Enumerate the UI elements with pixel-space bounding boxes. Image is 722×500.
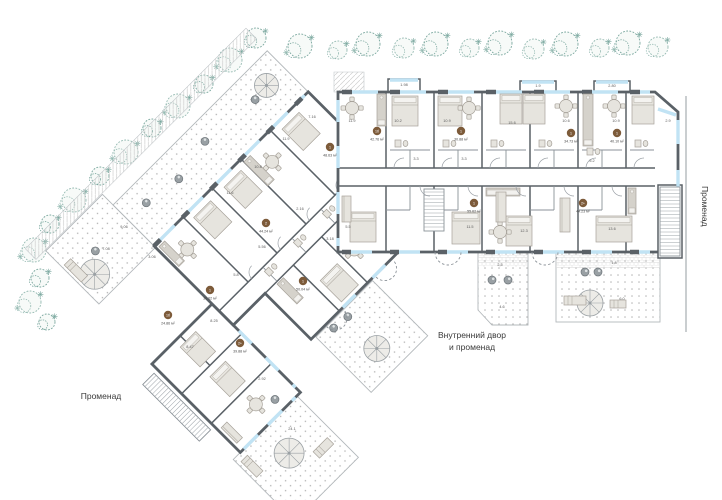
chair: [564, 113, 568, 117]
tree-sparkle: [376, 33, 382, 39]
tree-sparkle: [351, 48, 357, 54]
tree-cluster: [419, 32, 450, 56]
tree-sparkle: [263, 28, 269, 34]
dimension-label: 5.5: [345, 225, 350, 229]
bed: [500, 94, 522, 124]
unit-area: 44.23 м²: [576, 210, 590, 214]
sink: [630, 190, 633, 193]
tree-sparkle: [444, 33, 450, 39]
sink-unit: [443, 140, 449, 147]
tree-sparkle: [611, 47, 617, 53]
chair: [612, 95, 616, 99]
tree-sparkle: [508, 32, 514, 38]
dimension-label: 7.08: [102, 247, 109, 251]
tree-sparkle: [52, 313, 58, 319]
sofa: [560, 198, 570, 232]
tree-cluster: [14, 291, 43, 313]
unit-number: 1: [460, 129, 462, 133]
terrace-paving-2: [556, 252, 660, 268]
sink-unit: [395, 140, 401, 147]
tree-sparkle: [665, 37, 671, 43]
tree-sparkle: [283, 50, 289, 56]
tree-cluster: [29, 269, 51, 287]
tree-cluster: [351, 32, 382, 56]
chair: [489, 230, 493, 234]
dimension-label: 5.56: [258, 245, 265, 249]
tree-cluster: [392, 38, 416, 58]
dimension-label: 5.8: [233, 273, 238, 277]
label-promenade-left: Променад: [81, 391, 122, 401]
bed: [523, 94, 545, 124]
unit-area: 36.62 м²: [203, 297, 217, 301]
chair: [467, 97, 471, 101]
unit-area: 34.73 м²: [564, 140, 578, 144]
tree-sparkle: [308, 35, 314, 41]
stair-flight: [660, 187, 680, 256]
unit-number: 1б: [375, 129, 379, 133]
toilet: [643, 141, 648, 147]
dimension-label: 3.06: [148, 255, 155, 259]
unit-area: 44.24 м²: [259, 230, 273, 234]
label-promenade-right: Променад: [700, 186, 710, 227]
tree-cluster: [483, 31, 514, 55]
potted-plant: [504, 276, 512, 284]
sink-unit: [635, 140, 641, 147]
dimension-label: 10.6: [562, 119, 569, 123]
unit-area: 39.88 м²: [233, 350, 247, 354]
floor-plan-canvas: 1б42.76 м²130.88 м²134.73 м²140.10 м²155…: [0, 0, 722, 500]
lounger: [564, 296, 586, 305]
dimension-label: 10.2: [394, 119, 401, 123]
tree-sparkle: [483, 47, 489, 53]
stove: [378, 120, 385, 125]
dimension-label: 9.06: [120, 225, 127, 229]
unit-area: 24.86 м²: [161, 322, 175, 326]
dimension-label: 3.18: [326, 237, 333, 241]
unit-number: 1: [473, 201, 475, 205]
kitchen-counter: [583, 94, 593, 146]
chair: [507, 230, 511, 234]
unit-area: 30.88 м²: [454, 138, 468, 142]
chair: [498, 239, 502, 243]
toilet: [499, 141, 504, 147]
tree-cluster: [38, 313, 58, 330]
sink: [380, 96, 383, 99]
tree-sparkle: [549, 48, 555, 54]
toilet: [547, 141, 552, 147]
dimension-label: 11.9: [282, 137, 289, 141]
unit-number: 1: [209, 288, 211, 292]
toilet: [595, 149, 600, 155]
tree-cluster: [646, 37, 670, 57]
tree-cluster: [327, 41, 349, 59]
balcony-bays: [388, 79, 630, 92]
chair: [564, 95, 568, 99]
tree-sparkle: [606, 39, 612, 45]
dimension-label: 1.8: [611, 261, 616, 265]
potted-plant: [594, 268, 602, 276]
dimension-label: 7.16: [308, 115, 315, 119]
tree-sparkle: [411, 38, 417, 44]
dimension-label: 24.1: [288, 427, 295, 431]
dimension-label: 11.6: [226, 191, 233, 195]
unit-number: 1: [570, 131, 572, 135]
dimension-label: 6.0: [619, 297, 624, 301]
sink-unit: [491, 140, 497, 147]
unit-area: 55.62 м²: [467, 210, 481, 214]
chair: [476, 106, 480, 110]
sink-unit: [587, 148, 593, 155]
potted-plant: [581, 268, 589, 276]
bed: [350, 212, 376, 242]
floor-plan-page: 1б42.76 м²130.88 м²134.73 м²140.10 м²155…: [0, 0, 722, 500]
unit-number: 1: [329, 145, 331, 149]
tree-sparkle: [57, 204, 63, 210]
tree-sparkle: [636, 32, 642, 38]
unit-badge: 1б24.86 м²: [161, 311, 175, 326]
tree-cluster: [459, 39, 481, 57]
dimension-label: 10.9: [443, 119, 450, 123]
unit-number: 2+: [238, 341, 242, 345]
chair: [341, 106, 345, 110]
horizontal-wing: [334, 72, 686, 332]
chair: [612, 113, 616, 117]
dimension-label: 3.3: [461, 157, 466, 161]
chair: [621, 104, 625, 108]
dimension-label: 2.5: [497, 263, 502, 267]
dimension-label: 2.9: [665, 119, 670, 123]
dimension-label: 8.47: [186, 345, 193, 349]
dimension-label: 4.6: [499, 305, 504, 309]
corner-hatch-terrace: [334, 72, 364, 92]
stove: [629, 208, 635, 213]
chair: [467, 115, 471, 119]
dimension-label: 11.5: [466, 225, 473, 229]
dimension-label: 2.16: [296, 207, 303, 211]
bed: [632, 96, 654, 124]
lounger: [610, 300, 626, 308]
tree-cluster: [283, 34, 314, 58]
tree-cluster: [611, 31, 642, 55]
dimension-label: 5.2: [589, 159, 594, 163]
tree-cluster: [522, 39, 546, 59]
sofa: [496, 192, 506, 222]
dimension-label: 11.9: [348, 119, 355, 123]
tree-sparkle: [541, 39, 547, 45]
tree-cluster: [549, 32, 580, 56]
unit-area: 40.10 м²: [610, 140, 624, 144]
chair: [350, 97, 354, 101]
chair: [555, 104, 559, 108]
unit-area: 42.76 м²: [370, 138, 384, 142]
balcony-glazing: [390, 80, 628, 82]
label-courtyard-line1: Внутренний двор: [438, 330, 506, 340]
dimension-label: 12.3: [520, 229, 527, 233]
chair: [573, 104, 577, 108]
dimension-label: 1.9: [535, 84, 540, 88]
potted-plant: [488, 276, 496, 284]
chair: [359, 106, 363, 110]
terrace-paving-1: [478, 252, 528, 267]
sofa: [342, 196, 351, 222]
unit-area: 48.63 м²: [323, 154, 337, 158]
sink-unit: [539, 140, 545, 147]
dimension-label: 1.98: [400, 83, 407, 87]
tree-cluster: [589, 39, 611, 57]
tree-sparkle: [37, 291, 43, 297]
dimension-label: 3.3: [413, 157, 418, 161]
unit-number: 1: [302, 279, 304, 283]
dimension-label: 2.80: [608, 84, 615, 88]
sink: [586, 96, 589, 99]
unit-number: 1: [616, 131, 618, 135]
toilet: [403, 141, 408, 147]
chair: [458, 106, 462, 110]
dimension-label: 15.6: [508, 121, 515, 125]
unit-number: 1б: [166, 313, 170, 317]
unit-number: 2+: [581, 201, 585, 205]
unit-number: 2: [265, 221, 267, 225]
tree-sparkle: [574, 33, 580, 39]
tree-sparkle: [17, 254, 23, 260]
label-courtyard-line2: и променад: [449, 342, 495, 352]
chair: [603, 104, 607, 108]
tree-sparkle: [419, 48, 425, 54]
dimension-label: 8.25: [210, 319, 217, 323]
kitchen-counter: [377, 94, 386, 126]
stove: [584, 140, 592, 145]
kitchen-counter: [628, 188, 636, 214]
dimension-label: 10.8: [254, 165, 261, 169]
dimension-label: 13.6: [608, 227, 615, 231]
dimension-label: 10.9: [612, 119, 619, 123]
dimension-label: 2.92: [258, 377, 265, 381]
unit-area: 50.04 м²: [296, 288, 310, 292]
